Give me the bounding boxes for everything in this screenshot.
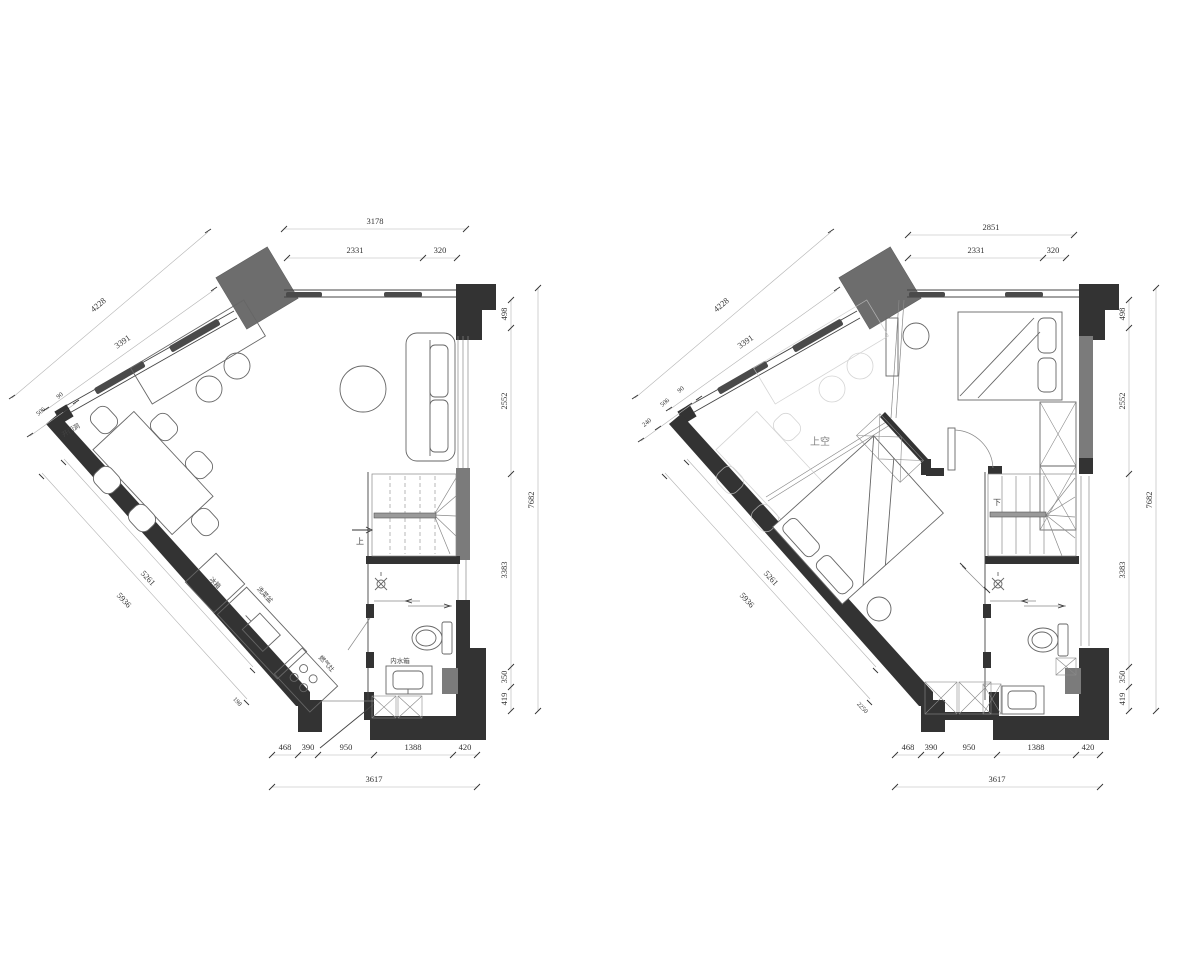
bedroom2 (773, 414, 991, 714)
dim-right-p3: 3383 (499, 562, 509, 579)
window-icon (286, 292, 322, 297)
dim-top-part1: 2331 (347, 245, 364, 255)
dim-ll-outer: 5936 (115, 590, 134, 609)
stair-up-label: 上 (356, 537, 364, 546)
dining-table (87, 403, 222, 539)
toilet-icon (1028, 624, 1068, 656)
stool-icon (224, 353, 250, 379)
wardrobe-icon (1040, 402, 1076, 530)
dim-lu-s1: 506 (659, 397, 672, 409)
upper-dims-right: 498 2552 3383 350 419 7682 (1117, 285, 1159, 714)
dim-right-p4: 350 (499, 671, 509, 684)
bedroom-door-icon (948, 428, 955, 470)
stool-icon (867, 597, 891, 621)
lower-kitchen: 冰箱 洗菜盆 燃气灶 (185, 553, 346, 712)
window-icon (94, 361, 146, 395)
cistern-label: 内水箱 (390, 656, 410, 665)
dim-bottom-p3: 950 (340, 742, 353, 752)
upper-stairs: 下 (988, 474, 1076, 556)
dim-bottom-p5: 420 (1082, 742, 1095, 752)
upper-dims-left-upper: 4228 3391 240 506 90 (632, 229, 840, 442)
shaft-box-icon (372, 696, 422, 718)
upper-dims-top: 2851 2331 320 (905, 222, 1077, 261)
dim-ll-inner: 5261 (762, 568, 781, 587)
window-icon (909, 292, 945, 297)
dim-top-part2: 320 (434, 245, 447, 255)
dim-bottom-p1: 468 (902, 742, 915, 752)
bed-diagonal-icon (773, 436, 944, 604)
dim-top-total: 3178 (367, 216, 384, 226)
handrail-icon (374, 513, 436, 518)
sliding-door-icon (990, 599, 1066, 608)
washbasin-icon: 内水箱 (386, 656, 432, 694)
sofa (406, 333, 455, 461)
column-icon (839, 247, 921, 329)
dim-top-total: 2851 (983, 222, 1000, 232)
dim-lu-inner: 3391 (112, 333, 132, 351)
dim-right-p5: 419 (1117, 693, 1127, 706)
dim-right-p1: 498 (499, 308, 509, 321)
toilet-icon (412, 622, 452, 654)
dim-ll-end: 2250 (855, 701, 869, 715)
dim-bottom-p2: 390 (925, 742, 938, 752)
dim-right-total: 7682 (1144, 492, 1154, 509)
bath-door-icon (962, 566, 986, 590)
lower-dims-right: 498 2552 3383 350 419 7682 (499, 285, 541, 714)
floor-plan-canvas: 冰箱 洗菜盆 燃气灶 (0, 0, 1200, 974)
lower-walls (46, 247, 496, 748)
dim-right-p1: 498 (1117, 308, 1127, 321)
dim-lu-s2: 90 (676, 385, 685, 395)
upper-dims-bottom: 468 390 950 1388 420 3617 (892, 742, 1103, 790)
dim-bottom-p2: 390 (302, 742, 315, 752)
lower-furniture (87, 300, 455, 539)
lower-dims-left-upper: 4228 3391 506 90 开门洞 (9, 229, 217, 439)
window-icon (792, 319, 844, 353)
dim-ll-outer: 5936 (738, 590, 757, 609)
dim-bottom-p5: 420 (459, 742, 472, 752)
stool-icon (903, 323, 929, 349)
bath-door-icon (348, 618, 370, 650)
handrail-icon (990, 512, 1046, 517)
sliding-door-icon (374, 599, 452, 608)
dim-right-p3: 3383 (1117, 562, 1127, 579)
dim-lu-outer: 4228 (711, 295, 730, 314)
dim-bottom-p4: 1388 (405, 742, 422, 752)
dim-lu-s1: 506 (35, 406, 48, 418)
floor-plan-drawing: 冰箱 洗菜盆 燃气灶 (0, 0, 1200, 974)
lower-dims-bottom: 468 390 950 1388 420 3617 (269, 742, 480, 790)
shower-icon (375, 572, 387, 590)
lower-dims-top: 3178 2331 320 (281, 216, 469, 261)
dim-top-part2: 320 (1047, 245, 1060, 255)
stair-down-label: 下 (993, 498, 1001, 507)
dim-bottom-p4: 1388 (1028, 742, 1045, 752)
dim-lu-outer: 4228 (88, 295, 107, 314)
dim-bottom-p3: 950 (963, 742, 976, 752)
dim-bottom-p1: 468 (279, 742, 292, 752)
dim-top-part1: 2331 (968, 245, 985, 255)
dim-ll-end: 198 (231, 696, 243, 708)
window-icon (717, 361, 769, 395)
shower-icon (992, 572, 1004, 590)
plan-lower-floor: 冰箱 洗菜盆 燃气灶 (9, 216, 541, 790)
dim-right-p2: 2552 (1117, 393, 1127, 410)
washbasin-icon (1002, 686, 1044, 714)
window-icon (384, 292, 422, 297)
dim-right-p4: 350 (1117, 671, 1127, 684)
lower-bathroom: 内水箱 (372, 572, 452, 718)
dim-ll-inner: 5261 (139, 568, 158, 587)
dim-right-p5: 419 (499, 693, 509, 706)
dim-lu-s0: 240 (641, 417, 653, 429)
dim-lu-s2: 90 (55, 391, 64, 401)
plan-upper-floor: 上空 (632, 222, 1159, 790)
stool-icon (196, 376, 222, 402)
coffee-table (340, 366, 386, 412)
dim-lu-inner: 3391 (735, 333, 755, 351)
dim-right-p2: 2552 (499, 393, 509, 410)
stove-label: 燃气灶 (317, 653, 337, 674)
window-icon (169, 319, 221, 353)
kitchen-sink-label: 洗菜盆 (255, 584, 275, 605)
dim-right-total: 7682 (526, 492, 536, 509)
void-label: 上空 (810, 435, 830, 448)
dim-bottom-total: 3617 (989, 774, 1006, 784)
dim-bottom-total: 3617 (366, 774, 383, 784)
window-icon (1005, 292, 1043, 297)
bed-double-icon (958, 312, 1062, 400)
